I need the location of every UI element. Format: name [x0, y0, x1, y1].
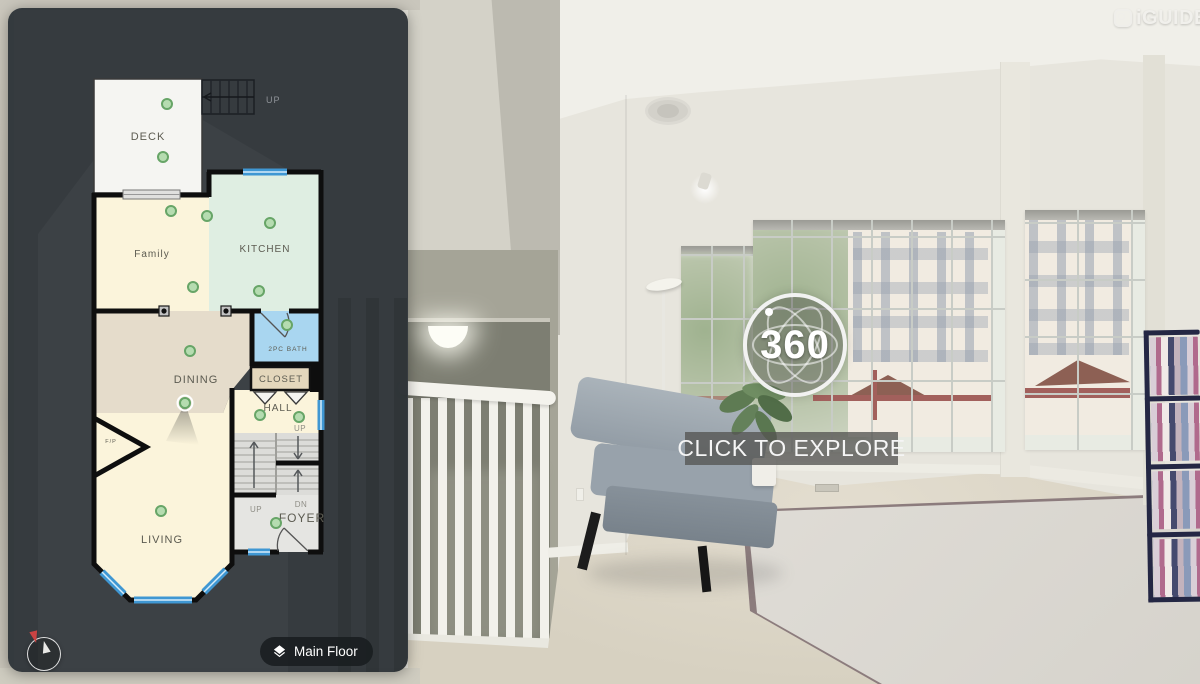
floorplan-panel: DECK Family KITCHEN DINING 2PC BATH CLOS… — [8, 8, 408, 672]
light-switch — [576, 488, 584, 501]
room-bath[interactable] — [253, 311, 321, 362]
label-kitchen: KITCHEN — [240, 244, 291, 255]
panorama-dot[interactable] — [254, 286, 264, 296]
floor-vent — [815, 484, 839, 492]
ceiling-speaker-cone — [657, 104, 679, 118]
futon-shadow — [588, 558, 783, 588]
floor-lamp-shade — [645, 276, 682, 293]
label-family: Family — [134, 249, 169, 260]
panorama-dot[interactable] — [294, 412, 304, 422]
panorama-dot[interactable] — [188, 282, 198, 292]
room-living[interactable] — [94, 390, 232, 600]
panorama-dot[interactable] — [265, 218, 275, 228]
label-stairs-dn: DN — [295, 500, 308, 509]
floor-selector-button[interactable]: Main Floor — [260, 637, 373, 666]
panorama-dot[interactable] — [282, 320, 292, 330]
floorplan-svg: DECK Family KITCHEN DINING 2PC BATH CLOS… — [8, 8, 408, 672]
label-closet: CLOSET — [259, 374, 303, 385]
panorama-dot[interactable] — [271, 518, 281, 528]
iguide-logo[interactable]: iGUIDE — [1114, 7, 1200, 29]
label-hall: HALL — [263, 403, 292, 414]
room-dining[interactable] — [94, 311, 251, 413]
cta-bar[interactable]: CLICK TO EXPLORE — [685, 432, 898, 465]
label-stairs-up: UP — [250, 505, 262, 514]
iguide-logo-text: iGUIDE — [1136, 7, 1200, 30]
label-deck: DECK — [131, 131, 166, 143]
panorama-dot-active[interactable] — [180, 398, 190, 408]
panorama-dot[interactable] — [185, 346, 195, 356]
iguide-camera-icon — [1114, 9, 1132, 27]
panorama-dot[interactable] — [202, 211, 212, 221]
wall-block — [310, 365, 323, 392]
label-foyer: FOYER — [279, 511, 325, 525]
railing-balusters — [404, 398, 552, 650]
label-bath: 2PC BATH — [268, 346, 307, 353]
panorama-dot[interactable] — [156, 506, 166, 516]
room-kitchen[interactable] — [209, 172, 321, 311]
right-window — [1025, 210, 1145, 450]
layers-icon — [272, 644, 287, 659]
iguide-viewer: 360 CLICK TO EXPLORE iGUIDE — [0, 0, 1200, 684]
panorama-dot[interactable] — [158, 152, 168, 162]
cta-label: CLICK TO EXPLORE — [677, 435, 905, 462]
panorama-dot[interactable] — [166, 206, 176, 216]
cube-bookshelf — [1144, 330, 1200, 603]
floor-selector-label: Main Floor — [294, 644, 358, 659]
ceiling — [540, 0, 1200, 132]
panorama-dot[interactable] — [162, 99, 172, 109]
label-hall-up: UP — [294, 424, 306, 433]
panorama-dot[interactable] — [255, 410, 265, 420]
orbit-electron-dot — [765, 308, 773, 316]
badge-360-label: 360 — [760, 323, 830, 368]
compass-needle-north — [40, 640, 51, 654]
label-fireplace: F/P — [105, 439, 117, 445]
label-dining: DINING — [174, 374, 219, 386]
stairs-top — [202, 80, 254, 114]
deck-sliding-door — [123, 190, 180, 199]
compass[interactable] — [27, 637, 61, 671]
label-living: LIVING — [141, 534, 183, 546]
badge-360[interactable]: 360 — [743, 293, 847, 397]
label-stairs-top-up: UP — [266, 95, 281, 105]
